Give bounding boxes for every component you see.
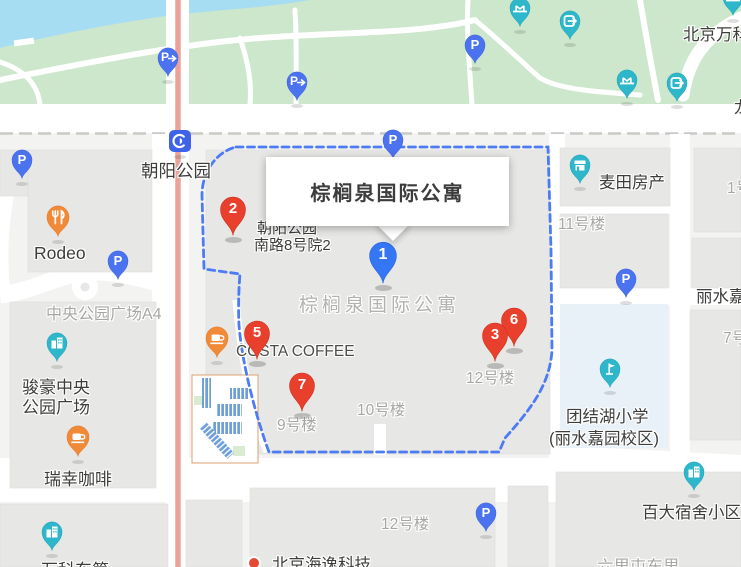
label-rodeo: Rodeo (34, 243, 86, 264)
label-school-line2: (丽水嘉园校区) (549, 425, 659, 449)
label-maitian-house: 麦田房产 (599, 169, 665, 193)
label-address-line2: 南路8号院2 (254, 234, 331, 255)
parking-letter: P (474, 505, 498, 520)
label-long-road: 龙 (734, 94, 741, 118)
storefront-icon (575, 161, 586, 171)
label-junhao-line2: 公园广场 (22, 393, 90, 418)
label-lishui: 丽水嘉园 (696, 283, 741, 307)
label-liulitun: 六里屯东里 (597, 553, 680, 567)
numbered-marker-7[interactable]: 7 (288, 372, 316, 417)
numbered-marker-1-primary[interactable]: 1 (368, 241, 398, 289)
metro-station-icon[interactable] (169, 130, 191, 157)
label-building-7: 7号楼 (723, 326, 741, 348)
label-building-12: 12号楼 (466, 366, 514, 388)
parking-letter: P (106, 253, 130, 268)
arrow-right-icon (297, 78, 307, 87)
parking-letter: P (614, 271, 638, 286)
label-baida-dorm: 百大宿舍小区 (642, 499, 741, 523)
numbered-marker-3[interactable]: 3 (481, 322, 509, 367)
coffee-poi-pin-luckin[interactable] (65, 424, 91, 462)
label-building-12-south: 12号楼 (381, 512, 429, 534)
label-school-line1: 团结湖小学 (566, 403, 649, 427)
info-card[interactable]: 棕榈泉国际公寓 (266, 157, 509, 226)
parking-letter: P (463, 37, 487, 52)
parking-letter: P (10, 152, 34, 167)
label-beijing-wanke: 北京万科 (683, 21, 741, 45)
poi-pin-clipped-top-right[interactable] (721, 0, 741, 21)
building-poi-pin-junhao[interactable] (45, 331, 69, 367)
numbered-marker-2[interactable]: 2 (219, 196, 247, 241)
label-luckin-coffee: 瑞幸咖啡 (44, 465, 112, 490)
building-poi-pin-baida[interactable] (682, 460, 706, 496)
label-chaoyang-park: 朝阳公园 (141, 158, 211, 183)
label-building-11: 11号楼 (558, 212, 605, 234)
school-poi-pin[interactable] (598, 357, 622, 393)
label-compound-name: 棕榈泉国际公寓 (299, 290, 460, 317)
parking-pin-park-east[interactable]: P (463, 33, 487, 69)
gate-poi-pin-1[interactable] (558, 9, 582, 45)
coffee-poi-pin-costa[interactable] (204, 325, 230, 363)
parking-letter: P (381, 132, 405, 147)
bridge-icon (726, 0, 740, 1)
label-building-1: 1号楼 (727, 176, 741, 198)
bridge-poi-pin-2[interactable] (615, 68, 639, 104)
map-canvas[interactable]: 朝阳公园 Rodeo 中央公园广场A4 骏豪中央 公园广场 瑞幸咖啡 COSTA… (0, 0, 741, 567)
building-poi-pin-wanke[interactable] (40, 520, 64, 556)
parking-entrance-pin-park[interactable]: P (156, 46, 180, 82)
gate-poi-pin-2[interactable] (665, 71, 689, 107)
shop-poi-pin-maitian[interactable] (568, 153, 592, 189)
arrow-right-icon (168, 54, 178, 63)
parking-pin-east[interactable]: P (614, 267, 638, 303)
label-building-10: 10号楼 (357, 398, 405, 420)
restaurant-poi-pin-rodeo[interactable] (45, 204, 71, 242)
info-card-title: 棕榈泉国际公寓 (311, 177, 465, 206)
label-central-park-plaza-a4: 中央公园广场A4 (46, 300, 162, 324)
label-beijing-hai: 北京海逸科技 (272, 551, 371, 567)
parking-pin-plaza[interactable]: P (106, 249, 130, 285)
bridge-poi-pin-1[interactable] (508, 0, 532, 32)
parking-entrance-pin-center[interactable]: P (285, 70, 309, 106)
parking-pin-west[interactable]: P (10, 148, 34, 184)
small-poi-dot-icon[interactable] (247, 556, 261, 567)
numbered-marker-5[interactable]: 5 (243, 320, 271, 365)
parking-pin-south[interactable]: P (474, 501, 498, 537)
